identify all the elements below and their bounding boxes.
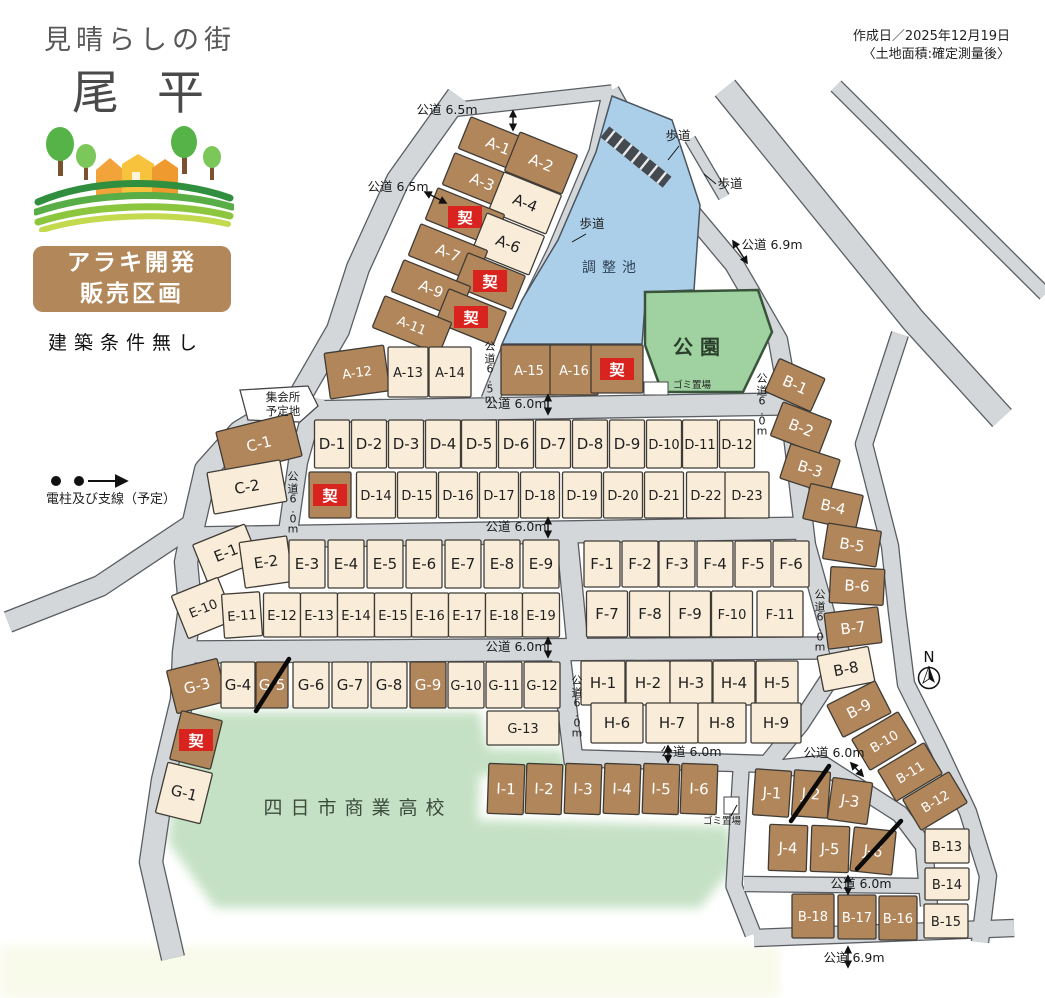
lot-D-21: D-21 [645,472,684,518]
lot-F-4: F-4 [697,541,733,587]
logo-trees-left [46,127,96,180]
svg-text:A-14: A-14 [435,366,465,381]
svg-text:I-6: I-6 [689,780,709,799]
svg-text:D-7: D-7 [540,435,567,453]
lot-D-12: D-12 [720,420,755,468]
svg-text:E-3: E-3 [295,555,319,573]
svg-text:F-4: F-4 [703,555,727,573]
svg-text:E-15: E-15 [378,609,407,624]
svg-text:G-4: G-4 [225,676,252,694]
lot-E-12: E-12 [264,593,301,637]
svg-text:B-17: B-17 [842,911,872,926]
lot-I-6: I-6 [680,763,718,814]
svg-text:I-4: I-4 [612,780,632,799]
lot-G-10: G-10 [448,662,484,708]
svg-text:J-3: J-3 [838,791,860,812]
svg-text:B-15: B-15 [931,915,961,930]
trash-box [644,382,668,395]
lot-E-7: E-7 [445,540,481,588]
lot-D-8: D-8 [573,420,608,468]
svg-text:H-9: H-9 [763,714,789,732]
lot-B-18: B-18 [792,894,834,938]
lot-F-9: F-9 [670,591,711,637]
area-label: 集会所 [266,390,301,404]
svg-text:G-10: G-10 [450,679,481,694]
road-label: 歩道 [717,176,743,191]
lot-E-3: E-3 [289,540,325,588]
svg-text:E-16: E-16 [415,609,444,624]
road-label: 公道 6.0m [485,396,546,411]
logo-trees-right [171,126,221,180]
svg-text:J-4: J-4 [777,839,797,858]
lot-D-10: D-10 [647,420,682,468]
svg-text:F-11: F-11 [766,608,795,623]
road-label: 公道 6.0m [485,519,546,534]
lot-G-4: G-4 [221,662,255,708]
lot-F-1: F-1 [584,541,620,587]
svg-text:H-7: H-7 [659,714,685,732]
lot-D-6: D-6 [499,420,534,468]
svg-text:E-18: E-18 [489,609,518,624]
svg-text:I-1: I-1 [496,780,516,799]
contract-badge: 契 [600,358,634,380]
svg-text:契: 契 [321,487,338,505]
svg-text:F-3: F-3 [665,555,689,573]
svg-text:A-13: A-13 [393,366,423,381]
lot-D-7: D-7 [536,420,571,468]
lot-D-15: D-15 [398,472,437,518]
svg-text:F-2: F-2 [628,555,652,573]
svg-text:E-12: E-12 [267,609,296,624]
svg-text:A-15: A-15 [514,364,544,379]
svg-text:D-5: D-5 [466,435,493,453]
area-label: ゴミ置場 [703,815,742,827]
lot-E-9: E-9 [523,540,559,588]
lot-D-4: D-4 [426,420,461,468]
lot-B-2: B-2 [770,402,831,454]
lot-G-12: G-12 [524,662,560,708]
svg-text:契: 契 [187,732,204,750]
lot-F-8: F-8 [630,591,671,637]
svg-text:I-5: I-5 [651,780,671,799]
svg-text:G-6: G-6 [298,676,325,694]
lot-E-4: E-4 [328,540,364,588]
lot-B-6: B-6 [829,567,885,606]
lot-B-7: B-7 [824,607,882,649]
developer-badge: アラキ開発 販売区画 [33,246,231,312]
svg-text:D-14: D-14 [360,489,391,504]
date-block: 作成日／2025年12月19日 〈土地面積:確定測量後〉 [853,28,1010,64]
lot-E-2: E-2 [239,536,293,588]
svg-text:B-18: B-18 [798,910,828,925]
lot-D-11: D-11 [683,420,718,468]
area-label: 四日市商業高校 [263,797,452,819]
contract-badge: 契 [448,206,482,228]
lot-D-22: D-22 [687,472,726,518]
road-label: 公道 6.5m [367,179,428,194]
lot-E-5: E-5 [367,540,403,588]
svg-text:E-2: E-2 [253,551,280,572]
lot-I-4: I-4 [603,763,641,814]
svg-text:E-7: E-7 [451,555,475,573]
svg-text:D-11: D-11 [684,438,715,453]
svg-text:G-11: G-11 [488,679,519,694]
svg-text:E-11: E-11 [227,608,257,625]
svg-text:D-19: D-19 [566,489,597,504]
lot-H-1: H-1 [581,661,625,705]
svg-text:E-4: E-4 [334,555,358,573]
svg-text:D-8: D-8 [577,435,604,453]
svg-text:F-6: F-6 [779,555,803,573]
lot-G-11: G-11 [486,662,522,708]
lot-D-16: D-16 [439,472,478,518]
lot-E-8: E-8 [484,540,520,588]
lot-G-8: G-8 [371,662,407,708]
svg-text:E-5: E-5 [373,555,397,573]
developer-badge-line1: アラキ開発 [33,248,231,279]
lot-B-5: B-5 [823,523,882,567]
svg-text:F-10: F-10 [718,608,747,623]
svg-text:F-9: F-9 [678,605,702,623]
svg-text:D-3: D-3 [393,435,420,453]
lot-B-14: B-14 [925,868,969,900]
svg-text:B-14: B-14 [932,878,962,893]
lot-H-8: H-8 [698,703,746,743]
lot-G-7: G-7 [332,662,368,708]
svg-text:契: 契 [462,309,479,327]
developer-badge-line2: 販売区画 [33,279,231,310]
lot-H-3: H-3 [670,661,712,705]
lot-D-18: D-18 [521,472,560,518]
site-plan-page: A-1A-2A-3A-4契A-6A-7契A-9契A-11A-12A-13A-14… [0,0,1045,998]
svg-text:J-5: J-5 [819,840,839,859]
svg-text:契: 契 [481,273,498,291]
svg-text:B-13: B-13 [932,840,962,855]
lot-G-9: G-9 [410,662,446,708]
road-label: 歩道 [579,216,605,231]
lot-contracted: 契 [309,472,351,518]
svg-text:E-19: E-19 [526,609,555,624]
svg-text:D-6: D-6 [503,435,530,453]
lot-D-9: D-9 [610,420,645,468]
lot-J-3: J-3 [827,777,872,824]
lot-D-19: D-19 [563,472,602,518]
area-label: 公園 [673,335,727,359]
lot-B-17: B-17 [838,895,876,939]
svg-text:D-21: D-21 [648,489,679,504]
lot-I-1: I-1 [487,763,525,814]
site-name: 尾平 [72,54,242,123]
lot-A-12: A-12 [324,345,390,399]
contract-badge: 契 [473,270,507,292]
lot-D-14: D-14 [357,472,396,518]
svg-text:G-12: G-12 [526,679,557,694]
lot-F-7: F-7 [587,591,628,637]
svg-text:D-9: D-9 [614,435,641,453]
road-label: 公道 6.0m [803,745,864,760]
svg-text:契: 契 [456,209,473,227]
svg-text:G-7: G-7 [337,676,364,694]
svg-text:D-22: D-22 [690,489,721,504]
svg-text:D-17: D-17 [483,489,514,504]
lot-E-11: E-11 [222,592,263,639]
svg-text:D-18: D-18 [524,489,555,504]
svg-text:F-1: F-1 [590,555,614,573]
svg-text:D-4: D-4 [430,435,457,453]
svg-text:H-8: H-8 [709,714,735,732]
svg-text:D-12: D-12 [721,438,752,453]
lot-A-15: A-15 [501,345,557,395]
road-label: 公道 6.0m [485,639,546,654]
lot-H-7: H-7 [646,703,698,743]
lot-I-2: I-2 [525,763,563,814]
lot-F-10: F-10 [712,591,753,637]
svg-text:B-7: B-7 [839,618,866,639]
road-label: 公道 6.0m [660,744,721,759]
lot-B-16: B-16 [879,896,917,940]
lot-E-13: E-13 [301,593,338,637]
lot-I-5: I-5 [642,763,680,814]
utility-legend: 電柱及び支線（予定） [46,476,176,507]
svg-text:H-3: H-3 [678,674,704,692]
road-label: 公道 6.5m [416,102,477,117]
area-note: 〈土地面積:確定測量後〉 [853,46,1010,64]
lot-D-5: D-5 [462,420,497,468]
area-label: ゴミ置場 [673,379,712,391]
lot-H-4: H-4 [713,661,755,705]
north-compass: N [919,648,940,689]
svg-text:B-16: B-16 [883,912,913,927]
svg-text:H-5: H-5 [764,674,790,692]
svg-text:F-5: F-5 [741,555,765,573]
lot-D-20: D-20 [604,472,643,518]
logo-houses [96,154,178,196]
svg-text:H-6: H-6 [604,714,630,732]
svg-text:D-10: D-10 [648,438,679,453]
svg-text:A-16: A-16 [559,364,589,379]
road-label: 公道 6.9m [741,237,802,252]
lot-B-15: B-15 [924,904,968,938]
road-label: 歩道 [665,128,691,143]
lot-contracted: 契 [591,345,643,393]
lot-E-18: E-18 [486,593,523,637]
svg-text:F-8: F-8 [638,605,662,623]
lot-H-2: H-2 [626,661,670,705]
svg-text:F-7: F-7 [595,605,619,623]
lot-D-2: D-2 [352,420,387,468]
lot-E-17: E-17 [449,593,486,637]
svg-text:B-6: B-6 [844,576,870,595]
lot-A-14: A-14 [429,347,471,397]
lot-D-3: D-3 [389,420,424,468]
road-label: 公道6.0m [572,674,583,740]
contract-badge: 契 [454,306,488,328]
svg-text:D-20: D-20 [607,489,638,504]
lot-D-1: D-1 [315,420,350,468]
svg-text:E-14: E-14 [341,609,370,624]
building-condition-note: 建築条件無し [48,328,204,355]
lot-H-5: H-5 [756,661,798,705]
road-label: 公道 6.0m [830,876,891,891]
lot-D-17: D-17 [480,472,519,518]
lot-H-9: H-9 [751,703,801,743]
svg-text:D-16: D-16 [442,489,473,504]
svg-text:H-2: H-2 [635,674,661,692]
lot-J-4: J-4 [768,824,808,871]
lot-E-15: E-15 [375,593,412,637]
lot-F-11: F-11 [757,591,803,637]
svg-text:G-9: G-9 [415,676,442,694]
lot-G-6: G-6 [293,662,329,708]
utility-legend-label: 電柱及び支線（予定） [46,491,176,507]
contract-badge: 契 [179,729,213,751]
svg-text:D-23: D-23 [731,489,762,504]
svg-text:E-8: E-8 [490,555,514,573]
developer-logo [34,116,234,232]
svg-text:E-6: E-6 [412,555,436,573]
created-date: 作成日／2025年12月19日 [853,28,1010,46]
svg-text:G-13: G-13 [507,722,538,737]
lot-E-6: E-6 [406,540,442,588]
svg-text:契: 契 [608,361,625,379]
svg-text:J-1: J-1 [761,783,782,802]
svg-text:H-4: H-4 [721,674,747,692]
lot-J-1: J-1 [752,769,791,817]
svg-text:I-2: I-2 [534,780,554,799]
lot-F-5: F-5 [735,541,771,587]
svg-text:D-15: D-15 [401,489,432,504]
lot-H-6: H-6 [591,703,643,743]
site-tagline: 見晴らしの街 [44,18,236,57]
lot-A-13: A-13 [388,347,428,397]
svg-text:G-8: G-8 [376,676,403,694]
road-label: 公道 6.9m [823,950,884,965]
lot-E-19: E-19 [523,593,560,637]
svg-text:N: N [923,648,934,666]
svg-text:D-2: D-2 [356,435,383,453]
lot-I-3: I-3 [564,763,602,814]
lot-F-6: F-6 [773,541,809,587]
lot-D-23: D-23 [725,472,769,518]
svg-text:E-13: E-13 [304,609,333,624]
svg-text:I-3: I-3 [573,780,593,799]
lot-G-13: G-13 [487,711,559,745]
svg-text:E-17: E-17 [452,609,481,624]
svg-text:H-1: H-1 [590,674,616,692]
svg-text:D-1: D-1 [319,435,346,453]
svg-text:E-9: E-9 [529,555,553,573]
lot-J-5: J-5 [810,825,850,872]
lot-F-3: F-3 [659,541,695,587]
area-label: 予定地 [266,404,301,418]
area-label: 調整池 [582,260,642,276]
lot-B-13: B-13 [925,829,969,863]
lot-F-2: F-2 [622,541,658,587]
lot-E-16: E-16 [412,593,449,637]
lot-E-14: E-14 [338,593,375,637]
contract-badge: 契 [313,484,347,506]
